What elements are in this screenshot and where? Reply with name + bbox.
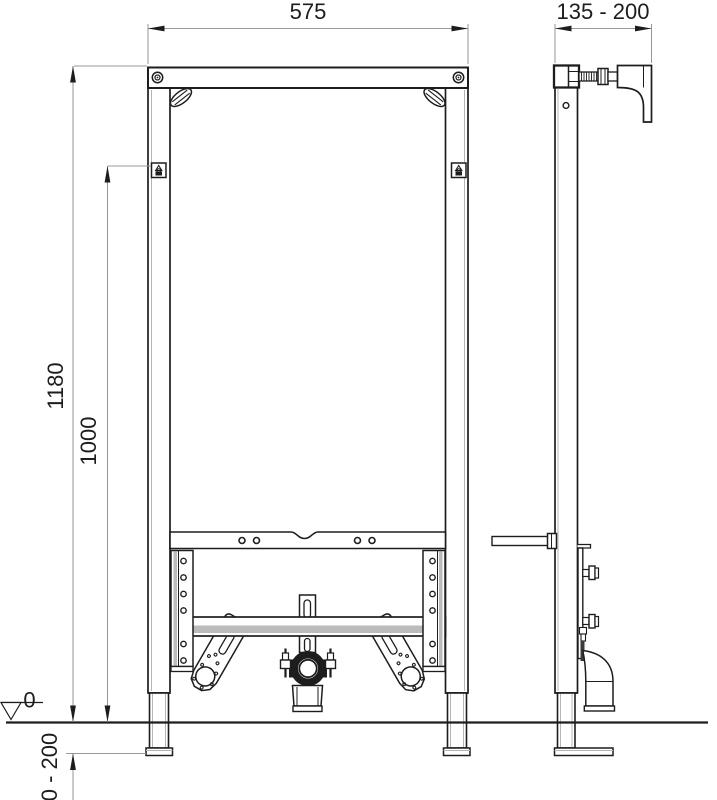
right-leg: [444, 693, 471, 756]
outlet-elbow: [583, 651, 615, 712]
flush-support-rod: [492, 534, 557, 549]
right-foot: [444, 748, 471, 756]
rod-end: [608, 72, 618, 81]
installation-drawing: 0 575 135 - 200 1180 1000 0 - 200: [0, 0, 717, 800]
dimension-foot-adjustment: 0 - 200: [37, 733, 146, 800]
side-plate-left: [171, 551, 193, 672]
fixing-point-right-icon: [452, 163, 467, 178]
clamp-pipe-bore: [299, 660, 316, 677]
side-plate-right: [423, 551, 445, 672]
pipe-clamp: [281, 649, 336, 683]
side-foot: [555, 748, 614, 756]
dimension-fixing-height: 1000: [76, 166, 151, 722]
left-leg: [146, 693, 173, 756]
stud-lower: [583, 615, 599, 629]
outlet-stub: [293, 686, 323, 712]
threaded-rod: [579, 72, 598, 81]
datum-triangle-icon: [1, 703, 21, 720]
dimension-frame-width: 575: [148, 0, 468, 64]
fixing-height-label: 1000: [76, 417, 101, 466]
wall-anchor: [554, 66, 579, 88]
stud-upper: [583, 566, 599, 580]
frame-height-label: 1180: [43, 362, 68, 409]
foot-adjustment-label: 0 - 200: [37, 733, 62, 800]
left-foot: [146, 748, 173, 756]
wall-bracket: [618, 66, 652, 123]
top-rail: [148, 68, 468, 89]
frame-width-label: 575: [290, 0, 327, 24]
wall-distance-label: 135 - 200: [557, 0, 650, 24]
technical-drawing-canvas: 0 575 135 - 200 1180 1000 0 - 200: [0, 0, 717, 800]
dimension-wall-distance: 135 - 200: [555, 0, 652, 63]
fixing-point-left-icon: [152, 163, 167, 178]
side-view: [492, 66, 652, 756]
datum-zero: 0: [1, 688, 43, 720]
rod-hex-nut: [598, 69, 608, 85]
dimension-frame-height: 1180: [43, 66, 147, 722]
support-rail: [170, 532, 446, 549]
front-view: [146, 68, 470, 756]
clamp-ring: [294, 655, 322, 683]
crossbar: [171, 617, 446, 636]
datum-label: 0: [23, 688, 35, 713]
